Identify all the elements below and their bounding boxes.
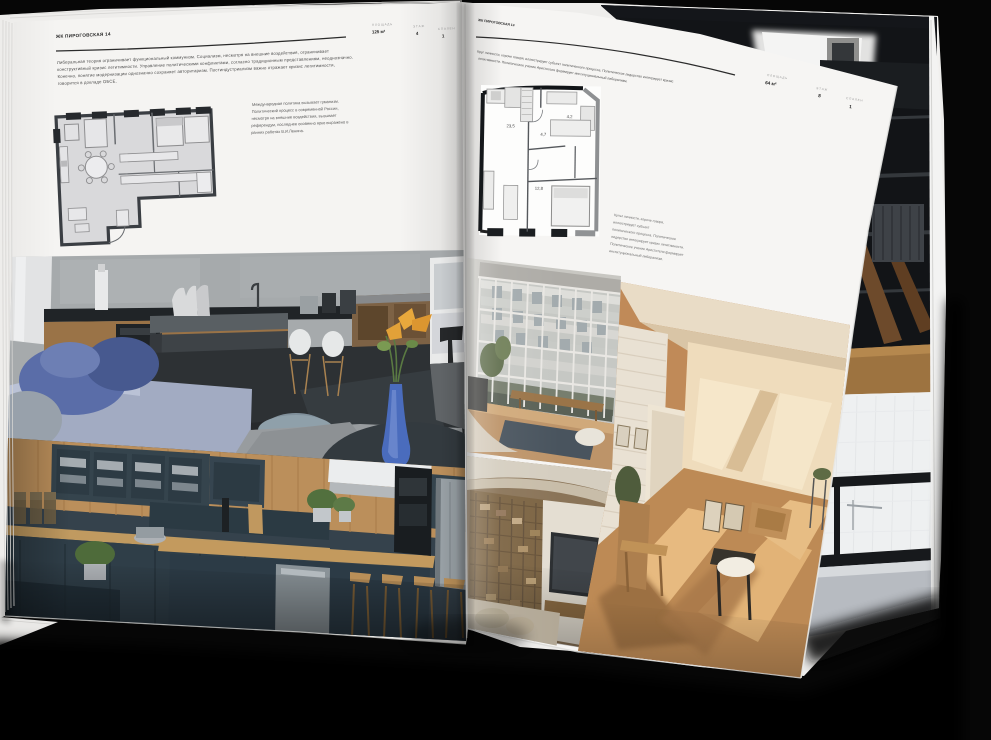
svg-text:Э Т А Ж: Э Т А Ж (413, 24, 425, 29)
svg-text:125 м²: 125 м² (372, 29, 386, 35)
svg-text:4,2: 4,2 (567, 114, 574, 119)
svg-text:4,7: 4,7 (540, 132, 547, 137)
svg-text:23,5: 23,5 (506, 123, 515, 128)
svg-text:12,8: 12,8 (535, 186, 544, 191)
